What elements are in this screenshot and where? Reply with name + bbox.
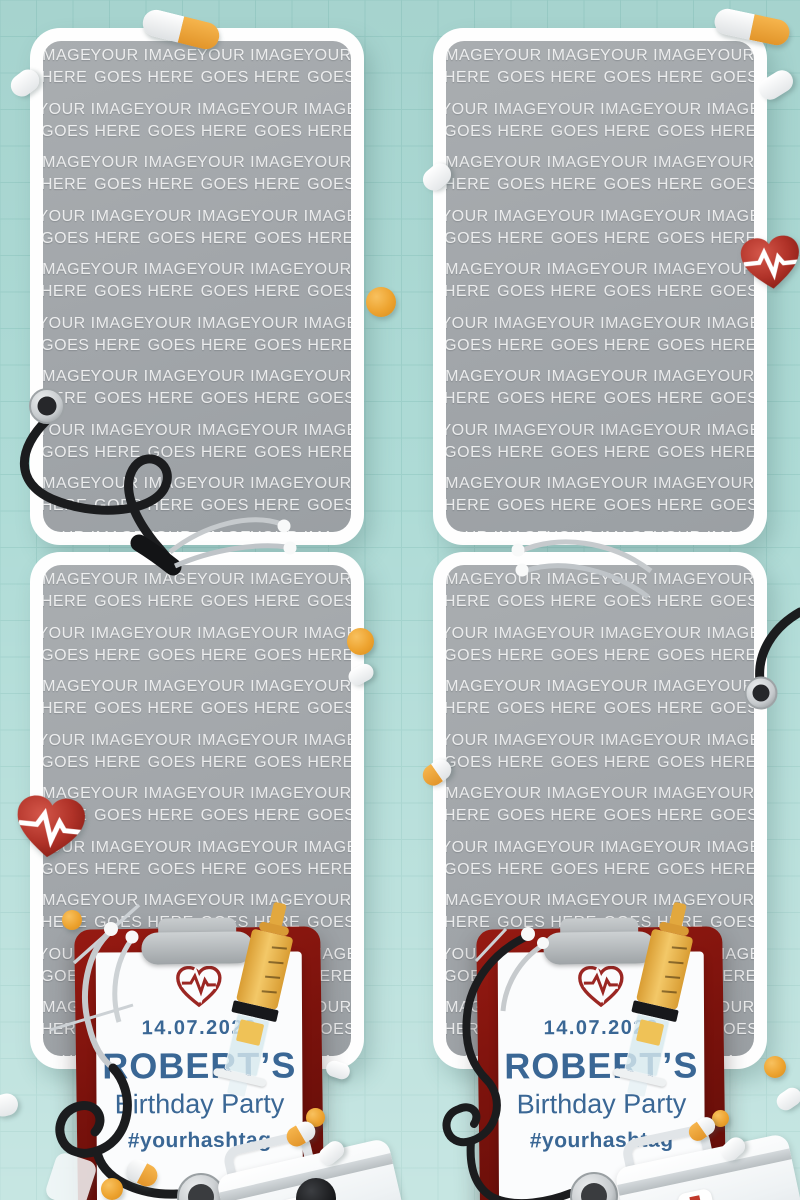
watermark-text: YOUR IMAGEGOES HERE (707, 152, 755, 196)
watermark-text: YOUR IMAGEGOES HERE (43, 259, 91, 303)
watermark-text: YOUR IMAGEGOES HERE (197, 366, 304, 410)
watermark-text: YOUR IMAGEGOES HERE (654, 837, 755, 881)
watermark-text: YOUR IMAGEGOES HERE (600, 676, 707, 720)
watermark-text: YOUR IMAGEGOES HERE (446, 676, 494, 720)
watermark-text: YOUR IMAGEGOES HERE (446, 527, 548, 533)
watermark-text: YOUR IMAGEGOES HERE (197, 676, 304, 720)
watermark-text: YOUR IMAGEGOES HERE (494, 152, 601, 196)
watermark-text: YOUR IMAGEGOES HERE (43, 206, 145, 250)
tablet-pill (0, 1091, 20, 1119)
scale-tick (665, 976, 680, 979)
round-pill (764, 1056, 786, 1078)
watermark-text: YOUR IMAGEGOES HERE (446, 45, 494, 89)
watermark-text: YOUR IMAGEGOES HERE (494, 676, 601, 720)
watermark-text: YOUR IMAGEGOES HERE (91, 676, 198, 720)
heart-pulse-icon (11, 791, 90, 864)
watermark-text: YOUR IMAGEGOES HERE (654, 623, 755, 667)
watermark-text: YOUR IMAGEGOES HERE (144, 623, 251, 667)
watermark-text: YOUR IMAGEGOES HERE (91, 152, 198, 196)
syringe-tip (227, 1079, 248, 1097)
watermark-text: YOUR IMAGEGOES HERE (446, 366, 494, 410)
watermark-text: YOUR IMAGEGOES HERE (446, 623, 548, 667)
heart-pulse-icon (578, 966, 624, 1008)
watermark-text: YOUR IMAGEGOES HERE (494, 259, 601, 303)
watermark-text: YOUR IMAGEGOES HERE (144, 206, 251, 250)
template-preview-sheet: YOUR IMAGEGOES HEREYOUR IMAGEGOES HEREYO… (0, 0, 800, 1200)
watermark-text: YOUR IMAGEGOES HERE (494, 569, 601, 613)
watermark-text: YOUR IMAGEGOES HERE (304, 473, 352, 517)
watermark-text: YOUR IMAGEGOES HERE (304, 366, 352, 410)
watermark-text: YOUR IMAGEGOES HERE (251, 527, 352, 533)
watermark-text: YOUR IMAGEGOES HERE (547, 206, 654, 250)
watermark-text: YOUR IMAGEGOES HERE (494, 783, 601, 827)
watermark-text: YOUR IMAGEGOES HERE (43, 676, 91, 720)
watermark-text: YOUR IMAGEGOES HERE (43, 473, 91, 517)
scale-tick (672, 946, 687, 949)
watermark-text: YOUR IMAGEGOES HERE (144, 730, 251, 774)
watermark-text: YOUR IMAGEGOES HERE (547, 420, 654, 464)
watermark-text: YOUR IMAGEGOES HERE (654, 313, 755, 357)
watermark-text: YOUR IMAGEGOES HERE (707, 473, 755, 517)
watermark-text: YOUR IMAGEGOES HERE (251, 837, 352, 881)
watermark-text: YOUR IMAGEGOES HERE (494, 473, 601, 517)
watermark-text: YOUR IMAGEGOES HERE (446, 837, 548, 881)
watermark-text: YOUR IMAGEGOES HERE (43, 152, 91, 196)
watermark-text: YOUR IMAGEGOES HERE (446, 420, 548, 464)
watermark-text: YOUR IMAGEGOES HERE (446, 152, 494, 196)
watermark-text: YOUR IMAGEGOES HERE (600, 569, 707, 613)
scale-tick (668, 961, 683, 964)
scale-tick (262, 990, 277, 993)
watermark-text: YOUR IMAGEGOES HERE (91, 259, 198, 303)
watermark-text: YOUR IMAGEGOES HERE (91, 783, 198, 827)
watermark-text: YOUR IMAGEGOES HERE (304, 152, 352, 196)
watermark-text: YOUR IMAGEGOES HERE (251, 206, 352, 250)
watermark-text: YOUR IMAGEGOES HERE (547, 837, 654, 881)
photo-card-top-right: YOUR IMAGEGOES HEREYOUR IMAGEGOES HEREYO… (433, 28, 767, 545)
watermark-text: YOUR IMAGEGOES HERE (304, 783, 352, 827)
watermark-text: YOUR IMAGEGOES HERE (197, 569, 304, 613)
scale-tick (265, 976, 280, 979)
watermark-text: YOUR IMAGEGOES HERE (197, 783, 304, 827)
watermark-text: YOUR IMAGEGOES HERE (304, 259, 352, 303)
watermark-text: YOUR IMAGEGOES HERE (446, 259, 494, 303)
watermark-text: YOUR IMAGEGOES HERE (43, 730, 145, 774)
scale-tick (272, 946, 287, 949)
watermark-text: YOUR IMAGEGOES HERE (144, 837, 251, 881)
watermark-text: YOUR IMAGEGOES HERE (707, 676, 755, 720)
clipboard-clip (543, 931, 655, 965)
watermark-text: YOUR IMAGEGOES HERE (43, 366, 91, 410)
invitation-name[interactable]: ROBERT’S (498, 1044, 704, 1087)
watermark-text: YOUR IMAGEGOES HERE (707, 45, 755, 89)
scale-tick (268, 961, 283, 964)
watermark-text: YOUR IMAGEGOES HERE (600, 259, 707, 303)
watermark-text: YOUR IMAGEGOES HERE (547, 99, 654, 143)
heart-pulse-icon (176, 966, 222, 1008)
watermark-text: YOUR IMAGEGOES HERE (547, 730, 654, 774)
watermark-text: YOUR IMAGEGOES HERE (494, 366, 601, 410)
watermark-text: YOUR IMAGEGOES HERE (251, 420, 352, 464)
watermark-text: YOUR IMAGEGOES HERE (547, 313, 654, 357)
photo-placeholder[interactable]: YOUR IMAGEGOES HEREYOUR IMAGEGOES HEREYO… (43, 41, 351, 532)
watermark-text: YOUR IMAGEGOES HERE (144, 313, 251, 357)
photo-placeholder[interactable]: YOUR IMAGEGOES HEREYOUR IMAGEGOES HEREYO… (446, 41, 754, 532)
watermark-text: YOUR IMAGEGOES HERE (43, 45, 91, 89)
watermark-text: YOUR IMAGEGOES HERE (43, 623, 145, 667)
syringe-glass (224, 1013, 270, 1077)
heart-pulse-icon (737, 232, 800, 295)
photo-card-top-left: YOUR IMAGEGOES HEREYOUR IMAGEGOES HEREYO… (30, 28, 364, 545)
syringe-glass (624, 1013, 670, 1077)
watermark-text: YOUR IMAGEGOES HERE (600, 45, 707, 89)
watermark-text: YOUR IMAGEGOES HERE (144, 527, 251, 533)
watermark-text: YOUR IMAGEGOES HERE (91, 569, 198, 613)
watermark-text: YOUR IMAGEGOES HERE (446, 313, 548, 357)
watermark-text: YOUR IMAGEGOES HERE (43, 99, 145, 143)
watermark-text: YOUR IMAGEGOES HERE (43, 569, 91, 613)
watermark-text: YOUR IMAGEGOES HERE (600, 366, 707, 410)
round-pill (62, 910, 82, 930)
watermark-text: YOUR IMAGEGOES HERE (144, 99, 251, 143)
watermark-text: YOUR IMAGEGOES HERE (304, 45, 352, 89)
watermark-text: YOUR IMAGEGOES HERE (547, 527, 654, 533)
watermark-text: YOUR IMAGEGOES HERE (654, 527, 755, 533)
watermark-text: YOUR IMAGEGOES HERE (43, 420, 145, 464)
round-pill (347, 628, 374, 655)
watermark-text: YOUR IMAGEGOES HERE (600, 152, 707, 196)
watermark-text: YOUR IMAGEGOES HERE (91, 366, 198, 410)
watermark-text: YOUR IMAGEGOES HERE (304, 569, 352, 613)
watermark-text: YOUR IMAGEGOES HERE (446, 730, 548, 774)
watermark-text: YOUR IMAGEGOES HERE (446, 569, 494, 613)
watermark-text: YOUR IMAGEGOES HERE (304, 676, 352, 720)
syringe-liquid (636, 1019, 664, 1046)
watermark-text: YOUR IMAGEGOES HERE (707, 569, 755, 613)
scale-tick (662, 990, 677, 993)
first-aid-kit (614, 1133, 800, 1200)
watermark-text: YOUR IMAGEGOES HERE (197, 473, 304, 517)
watermark-text: YOUR IMAGEGOES HERE (600, 473, 707, 517)
watermark-text: YOUR IMAGEGOES HERE (251, 730, 352, 774)
invitation-event[interactable]: Birthday Party (498, 1088, 704, 1120)
watermark-text: YOUR IMAGEGOES HERE (446, 99, 548, 143)
invitation-event[interactable]: Birthday Party (96, 1088, 302, 1120)
watermark-text: YOUR IMAGEGOES HERE (446, 473, 494, 517)
watermark-text: YOUR IMAGEGOES HERE (43, 313, 145, 357)
watermark-text: YOUR IMAGEGOES HERE (144, 420, 251, 464)
syringe-liquid (236, 1019, 264, 1046)
watermark-text: YOUR IMAGEGOES HERE (446, 783, 494, 827)
watermark-text: YOUR IMAGEGOES HERE (43, 527, 145, 533)
watermark-text: YOUR IMAGEGOES HERE (91, 45, 198, 89)
watermark-text: YOUR IMAGEGOES HERE (91, 473, 198, 517)
round-pill (101, 1178, 123, 1200)
watermark-text: YOUR IMAGEGOES HERE (654, 730, 755, 774)
watermark-text: YOUR IMAGEGOES HERE (707, 366, 755, 410)
watermark-text: YOUR IMAGEGOES HERE (654, 420, 755, 464)
watermark-text: YOUR IMAGEGOES HERE (251, 99, 352, 143)
watermark-text: YOUR IMAGEGOES HERE (707, 783, 755, 827)
watermark-text: YOUR IMAGEGOES HERE (446, 206, 548, 250)
watermark-text: YOUR IMAGEGOES HERE (251, 313, 352, 357)
watermark-text: YOUR IMAGEGOES HERE (654, 99, 755, 143)
invitation-name[interactable]: ROBERT’S (96, 1044, 302, 1087)
tablet-pill (773, 1084, 800, 1114)
syringe-tip (627, 1079, 648, 1097)
watermark-text: YOUR IMAGEGOES HERE (197, 259, 304, 303)
watermark-text: YOUR IMAGEGOES HERE (197, 45, 304, 89)
watermark-text: YOUR IMAGEGOES HERE (600, 783, 707, 827)
round-pill (366, 287, 396, 317)
watermark-text: YOUR IMAGEGOES HERE (197, 152, 304, 196)
clipboard-clip (141, 931, 253, 965)
watermark-text: YOUR IMAGEGOES HERE (494, 45, 601, 89)
watermark-text: YOUR IMAGEGOES HERE (547, 623, 654, 667)
watermark-text: YOUR IMAGEGOES HERE (251, 623, 352, 667)
